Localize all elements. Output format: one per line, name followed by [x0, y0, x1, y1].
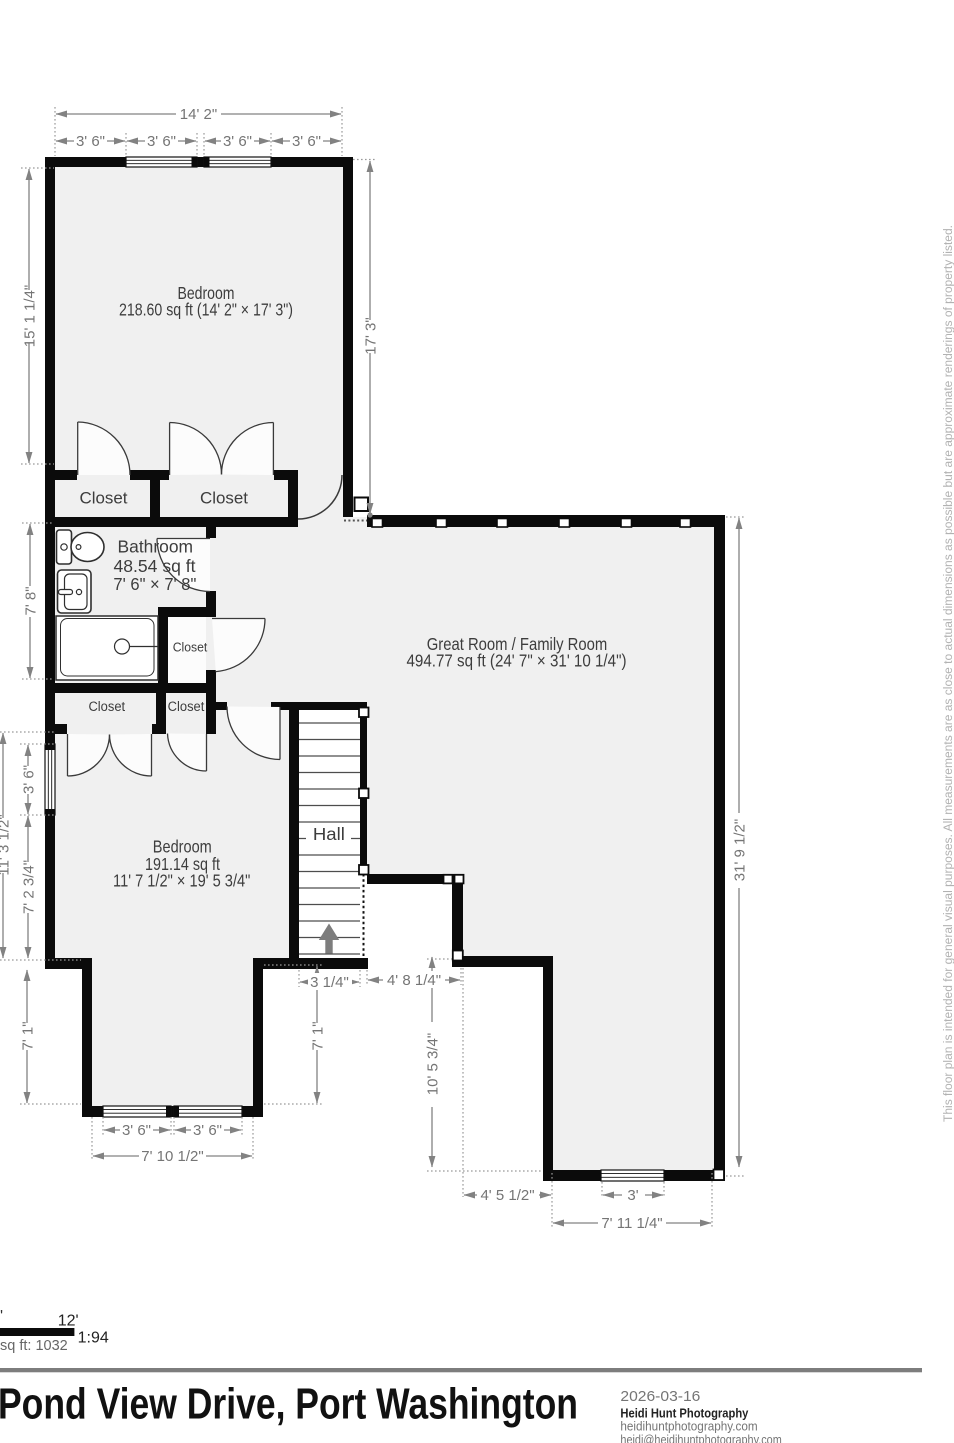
svg-text:31' 9 1/2": 31' 9 1/2" — [732, 819, 749, 881]
svg-text:2026-03-16: 2026-03-16 — [620, 1388, 700, 1405]
svg-text:14' 2": 14' 2" — [180, 106, 217, 123]
svg-text:Closet: Closet — [200, 489, 248, 508]
svg-text:3': 3' — [627, 1187, 638, 1204]
svg-text:11' 3 1/2": 11' 3 1/2" — [0, 814, 13, 875]
svg-text:7' 10 1/2": 7' 10 1/2" — [141, 1148, 203, 1165]
svg-text:3 1/4": 3 1/4" — [310, 974, 349, 991]
svg-text:4' 5 1/2": 4' 5 1/2" — [480, 1187, 534, 1204]
svg-text:7' 2 3/4": 7' 2 3/4" — [21, 860, 38, 914]
svg-text:Hall: Hall — [313, 824, 345, 844]
svg-text:4' 8 1/4": 4' 8 1/4" — [387, 972, 441, 989]
svg-text:Closet: Closet — [80, 489, 128, 508]
svg-text:3' 6": 3' 6" — [76, 133, 105, 150]
svg-text:sq ft: 1032: sq ft: 1032 — [0, 1338, 68, 1354]
svg-text:7' 8": 7' 8" — [23, 586, 40, 615]
svg-text:3' 6": 3' 6" — [292, 133, 321, 150]
svg-text:Closet: Closet — [168, 699, 205, 714]
svg-text:3' 6": 3' 6" — [122, 1122, 151, 1139]
svg-text:Closet: Closet — [173, 640, 208, 655]
svg-text:7' 11 1/4": 7' 11 1/4" — [601, 1215, 662, 1232]
svg-text:11' 7 1/2" × 19' 5 3/4": 11' 7 1/2" × 19' 5 3/4" — [113, 871, 250, 891]
svg-text:3' 6": 3' 6" — [193, 1122, 222, 1139]
svg-text:48.54 sq ft: 48.54 sq ft — [114, 556, 196, 576]
svg-text:218.60 sq ft (14' 2" × 17' 3"): 218.60 sq ft (14' 2" × 17' 3") — [119, 300, 293, 320]
svg-text:7' 1": 7' 1" — [20, 1021, 37, 1050]
svg-text:7' 6" × 7' 8": 7' 6" × 7' 8" — [113, 574, 196, 594]
svg-text:12': 12' — [58, 1313, 79, 1330]
svg-text:heidi@heidihuntphotography.com: heidi@heidihuntphotography.com — [620, 1432, 781, 1443]
svg-text:3' 6": 3' 6" — [223, 133, 252, 150]
svg-text:Bathroom: Bathroom — [118, 537, 194, 557]
svg-text:10' 5 3/4": 10' 5 3/4" — [425, 1033, 442, 1095]
svg-text:Closet: Closet — [88, 699, 125, 714]
svg-text:3' 6": 3' 6" — [147, 133, 176, 150]
svg-text:Pond View Drive, Port Washingt: Pond View Drive, Port Washington — [0, 1380, 578, 1428]
svg-text:494.77 sq ft (24' 7" × 31' 10: 494.77 sq ft (24' 7" × 31' 10 1/4") — [407, 650, 627, 670]
svg-text:': ' — [0, 1308, 3, 1325]
svg-text:17' 3": 17' 3" — [363, 317, 380, 354]
svg-text:3' 6": 3' 6" — [21, 765, 38, 794]
svg-text:7' 1": 7' 1" — [310, 1021, 327, 1050]
svg-text:This floor plan is intended fo: This floor plan is intended for general … — [943, 225, 954, 1122]
svg-text:1:94: 1:94 — [78, 1329, 109, 1346]
svg-text:15' 1 1/4": 15' 1 1/4" — [22, 285, 39, 347]
